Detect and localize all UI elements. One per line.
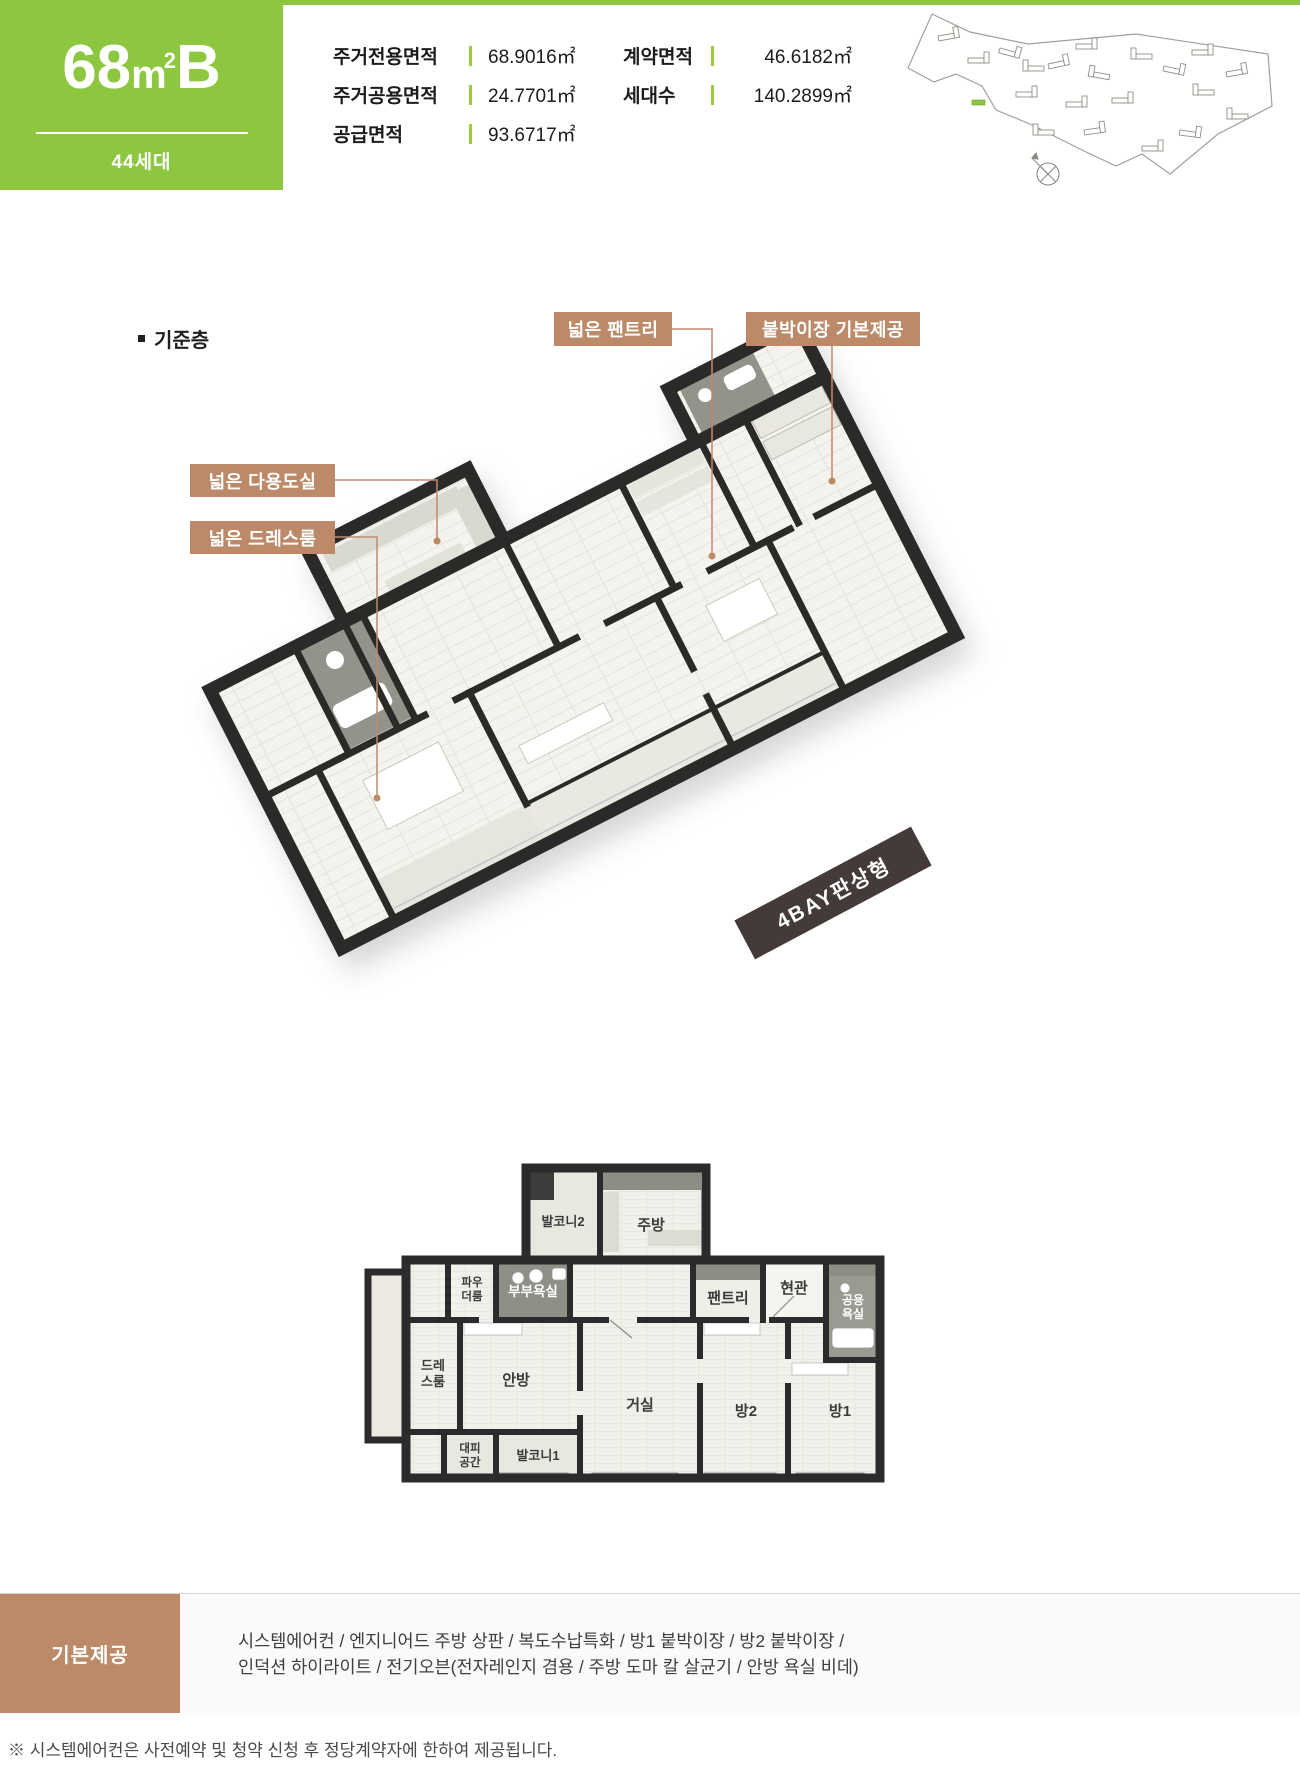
site-highlighted-building — [972, 100, 985, 105]
spec-table-right: 계약면적 46.6182㎡ 세대수 140.2899㎡ — [623, 36, 852, 114]
room-label-room2: 방2 — [735, 1402, 757, 1420]
unit-divider — [36, 132, 248, 134]
room-label-balcony2: 발코니2 — [541, 1214, 584, 1229]
spec-row: 공급면적 93.6717㎡ — [333, 114, 576, 153]
provide-items: 시스템에어컨 / 엔지니어드 주방 상판 / 복도수납특화 / 방1 붙박이장 … — [238, 1594, 859, 1713]
room-label-common-bath: 공용 — [842, 1292, 864, 1307]
footnote: ※ 시스템에어컨은 사전예약 및 청약 신청 후 정당계약자에 한하여 제공됩니… — [8, 1736, 557, 1761]
spec-label: 계약면적 — [623, 42, 711, 69]
site-map — [880, 6, 1280, 191]
spec-row: 주거전용면적 68.9016㎡ — [333, 36, 576, 75]
room-label-powder: 파우 — [461, 1275, 483, 1289]
spec-divider — [469, 46, 472, 66]
provide-line-1: 시스템에어컨 / 엔지니어드 주방 상판 / 복도수납특화 / 방1 붙박이장 … — [238, 1628, 859, 1654]
spec-value: 46.6182㎡ — [730, 42, 852, 69]
unit-letter: B — [176, 33, 221, 102]
spec-value: 140.2899㎡ — [730, 81, 852, 108]
spec-value: 24.7701㎡ — [488, 81, 576, 108]
spec-row: 주거공용면적 24.7701㎡ — [333, 75, 576, 114]
spec-divider — [711, 46, 714, 66]
compass-icon — [1032, 153, 1059, 185]
room-label-room1: 방1 — [829, 1402, 851, 1420]
spec-divider — [469, 85, 472, 105]
floor-plan-2d: 발코니2 주방 파우 더룸 부부욕실 팬트리 현관 공용 욕실 드레 스룸 안방… — [348, 1160, 888, 1505]
callout-pantry: 넓은 팬트리 — [554, 312, 672, 346]
room-label-master-bath: 부부욕실 — [508, 1284, 558, 1299]
svg-text:스룸: 스룸 — [421, 1374, 445, 1389]
spec-label: 주거전용면적 — [333, 42, 469, 69]
spec-table-left: 주거전용면적 68.9016㎡ 주거공용면적 24.7701㎡ 공급면적 93.… — [333, 36, 576, 153]
unit-households: 44세대 — [0, 147, 283, 174]
room-label-kitchen: 주방 — [637, 1216, 665, 1234]
room-label-dressroom: 드레 — [421, 1358, 445, 1373]
unit-meter: m — [131, 53, 167, 97]
provide-line-2: 인덕션 하이라이트 / 전기오븐(전자레인지 겸용 / 주방 도마 칼 살균기 … — [238, 1654, 859, 1680]
spec-divider — [469, 124, 472, 144]
room-label-balcony1: 발코니1 — [516, 1448, 559, 1463]
svg-text:더룸: 더룸 — [461, 1289, 483, 1303]
callout-wardrobe: 붙박이장 기본제공 — [746, 312, 920, 346]
spec-row: 세대수 140.2899㎡ — [623, 75, 852, 114]
unit-badge: 68m2B 44세대 — [0, 0, 283, 190]
spec-label: 주거공용면적 — [333, 81, 469, 108]
unit-sup: 2 — [164, 48, 176, 73]
provide-section: 기본제공 시스템에어컨 / 엔지니어드 주방 상판 / 복도수납특화 / 방1 … — [0, 1593, 1300, 1713]
svg-text:공간: 공간 — [459, 1455, 481, 1469]
spec-value: 93.6717㎡ — [488, 120, 576, 147]
spec-label: 공급면적 — [333, 120, 469, 147]
spec-value: 68.9016㎡ — [488, 42, 576, 69]
spec-label: 세대수 — [623, 81, 711, 108]
room-label-pantry: 팬트리 — [707, 1290, 748, 1307]
spec-divider — [711, 85, 714, 105]
room-label-master: 안방 — [502, 1371, 530, 1389]
page: 68m2B 44세대 주거전용면적 68.9016㎡ 주거공용면적 24.770… — [0, 0, 1300, 1788]
room-label-entrance: 현관 — [780, 1280, 808, 1297]
callout-utility: 넓은 다용도실 — [190, 464, 335, 497]
callout-dressroom: 넓은 드레스룸 — [190, 521, 335, 554]
room-label-living: 거실 — [626, 1397, 654, 1414]
unit-title: 68m2B — [0, 36, 283, 116]
unit-number: 68 — [62, 33, 131, 102]
provide-title: 기본제공 — [0, 1594, 180, 1713]
room-label-evac: 대피 — [459, 1441, 480, 1455]
spec-row: 계약면적 46.6182㎡ — [623, 36, 852, 75]
svg-text:욕실: 욕실 — [842, 1306, 864, 1321]
site-boundary — [908, 14, 1272, 174]
